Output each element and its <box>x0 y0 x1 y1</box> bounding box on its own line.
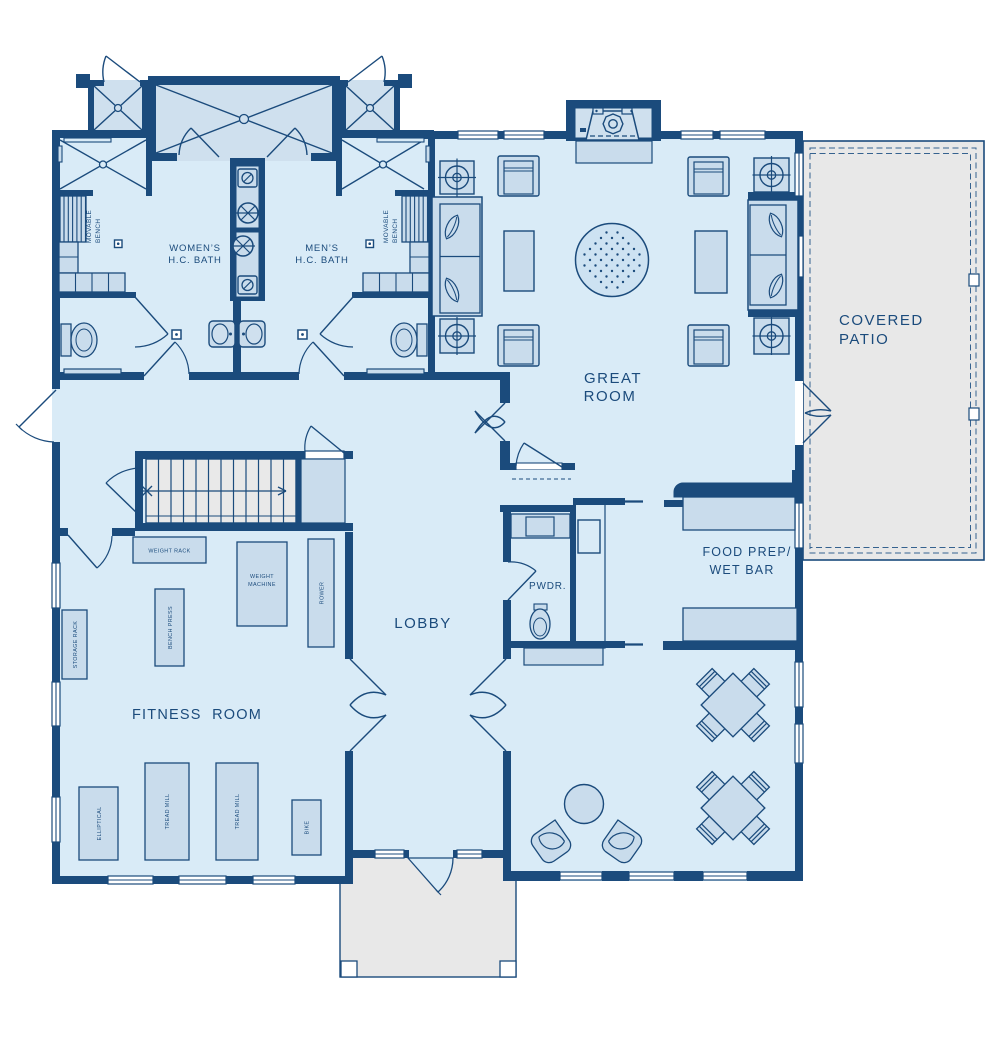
svg-text:STORAGE RACK: STORAGE RACK <box>73 621 79 669</box>
svg-text:ROWER: ROWER <box>320 582 326 605</box>
svg-text:H.C. BATH: H.C. BATH <box>168 255 221 266</box>
svg-text:BENCH: BENCH <box>95 219 102 243</box>
svg-text:WEIGHT RACK: WEIGHT RACK <box>148 549 190 555</box>
svg-text:TREAD MILL: TREAD MILL <box>165 794 171 830</box>
svg-text:ROOM: ROOM <box>584 388 637 405</box>
svg-text:H.C. BATH: H.C. BATH <box>295 255 348 266</box>
svg-text:TREAD MILL: TREAD MILL <box>235 794 241 830</box>
svg-text:ELLIPTICAL: ELLIPTICAL <box>97 807 103 841</box>
svg-text:BENCH PRESS: BENCH PRESS <box>168 606 174 649</box>
svg-text:LOBBY: LOBBY <box>394 615 452 632</box>
svg-text:WEIGHT: WEIGHT <box>250 574 274 580</box>
svg-text:PWDR.: PWDR. <box>529 581 566 592</box>
svg-text:WET BAR: WET BAR <box>709 563 774 577</box>
svg-text:PATIO: PATIO <box>839 331 889 348</box>
svg-text:MOVABLE: MOVABLE <box>86 210 93 243</box>
svg-text:WOMEN’S: WOMEN’S <box>169 243 221 254</box>
svg-text:MEN’S: MEN’S <box>305 243 339 254</box>
svg-text:MACHINE: MACHINE <box>248 582 276 588</box>
svg-text:MOVABLE: MOVABLE <box>383 210 390 243</box>
svg-text:FOOD PREP/: FOOD PREP/ <box>702 545 791 559</box>
svg-text:BIKE: BIKE <box>305 821 311 835</box>
svg-text:COVERED: COVERED <box>839 312 924 329</box>
svg-text:GREAT: GREAT <box>584 370 642 387</box>
svg-text:FITNESS ROOM: FITNESS ROOM <box>132 707 262 723</box>
svg-text:BENCH: BENCH <box>392 219 399 243</box>
